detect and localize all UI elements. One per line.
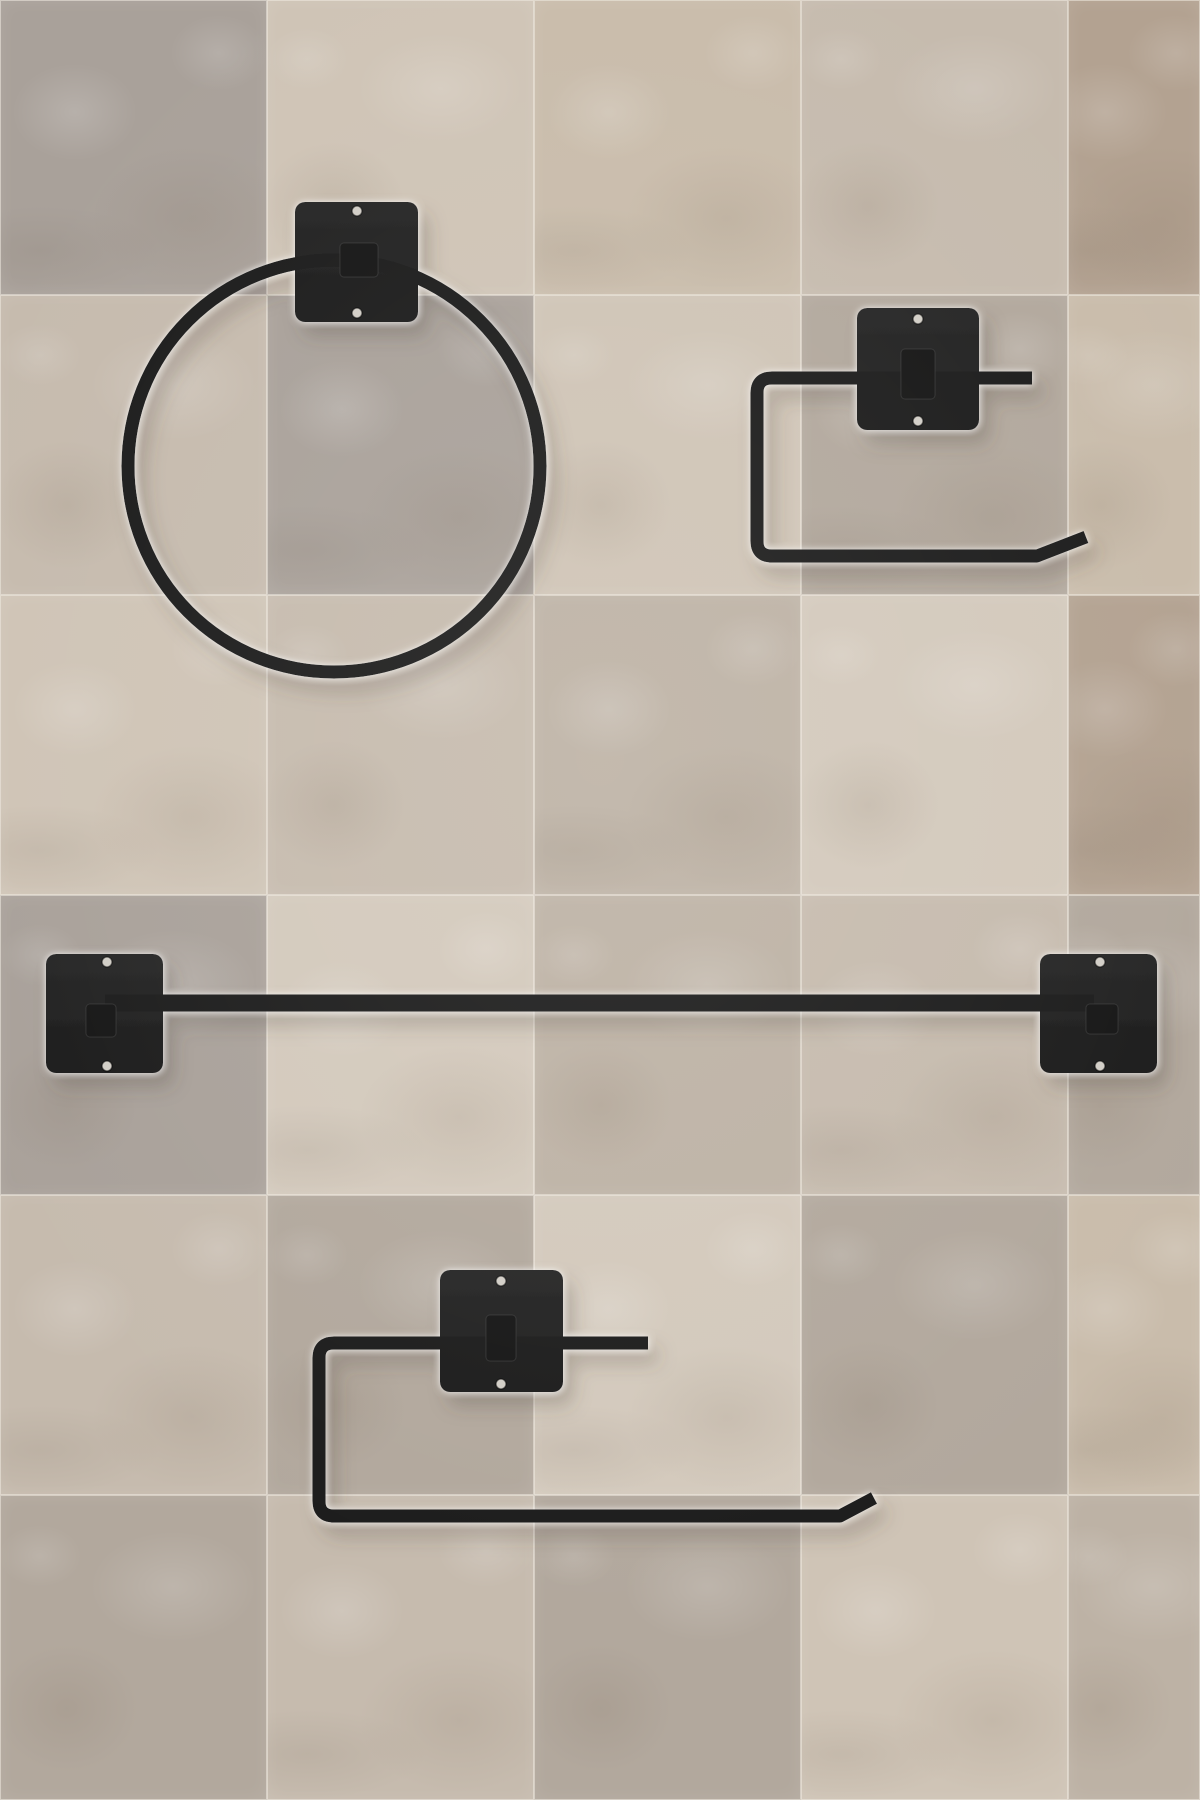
- hardware-bar: [319, 1343, 874, 1516]
- screw-head: [913, 314, 923, 324]
- screw-head: [102, 1061, 112, 1071]
- toilet-paper-holder-fixture: [757, 308, 1086, 556]
- mounting-bracket-tab: [901, 349, 935, 399]
- photo-stage: [0, 0, 1200, 1800]
- screw-head: [352, 308, 362, 318]
- screw-head: [1095, 957, 1105, 967]
- mounting-bracket-tab: [1086, 1004, 1118, 1034]
- screw-head: [913, 416, 923, 426]
- towel-ring-fixture: [128, 202, 540, 672]
- mounting-bracket-tab: [86, 1004, 116, 1037]
- hardware-set: [0, 0, 1200, 1800]
- screw-head: [496, 1276, 506, 1286]
- screw-head: [102, 957, 112, 967]
- towel-bar-fixture: [46, 954, 1157, 1073]
- screw-head: [496, 1379, 506, 1389]
- screw-head: [1095, 1061, 1105, 1071]
- mounting-bracket-tab: [340, 243, 378, 277]
- mounting-bracket-tab: [486, 1315, 516, 1361]
- screw-head: [352, 206, 362, 216]
- paper-towel-holder-fixture: [319, 1270, 874, 1516]
